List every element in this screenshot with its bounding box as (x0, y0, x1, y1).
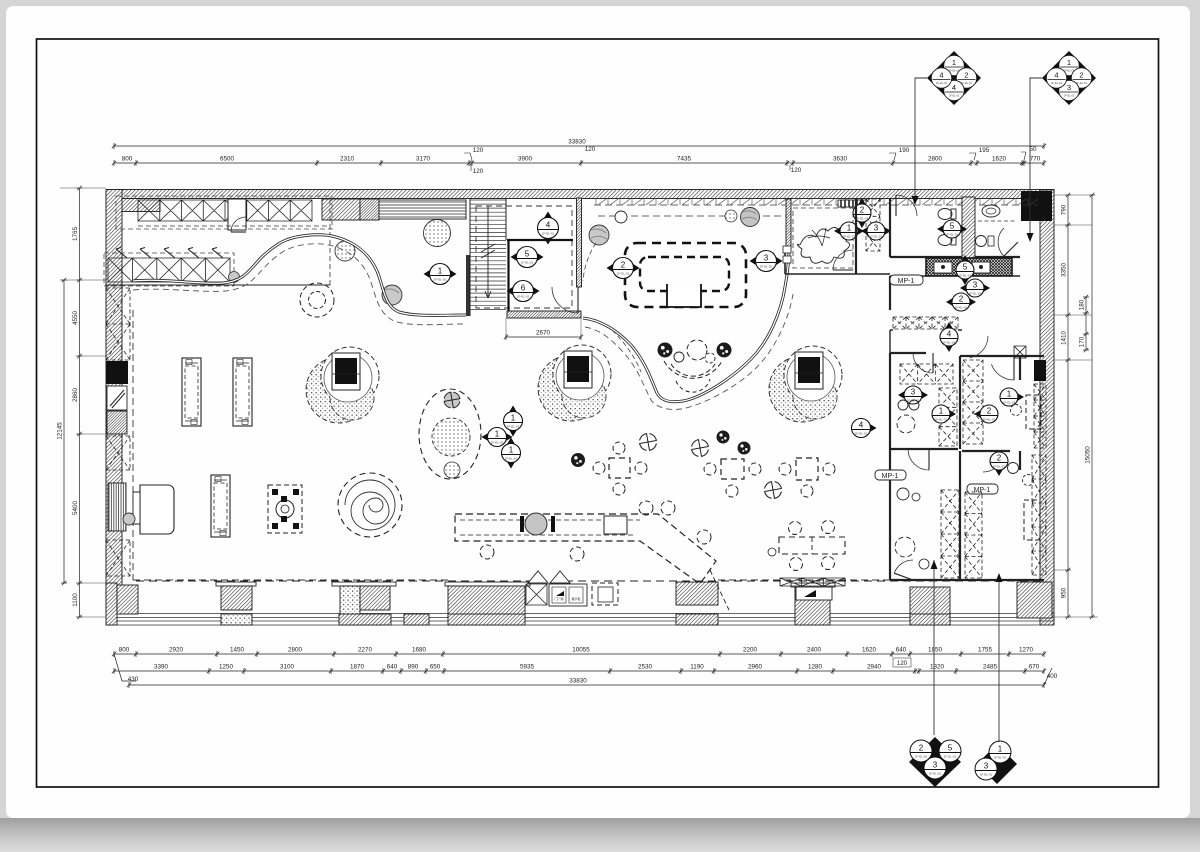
svg-text:展示柜: 展示柜 (571, 596, 580, 601)
svg-text:10055: 10055 (572, 647, 590, 654)
svg-text:1: 1 (509, 446, 514, 455)
svg-text:2800: 2800 (928, 156, 943, 163)
svg-text:1F-EL-01: 1F-EL-01 (935, 418, 948, 422)
svg-text:1F-EL-01: 1F-EL-01 (929, 772, 942, 776)
svg-text:4: 4 (859, 421, 864, 430)
svg-text:1: 1 (998, 745, 1003, 754)
svg-text:3: 3 (1067, 83, 1071, 92)
svg-text:2: 2 (621, 261, 626, 270)
svg-text:2: 2 (987, 407, 992, 416)
svg-text:790: 790 (1061, 204, 1068, 215)
svg-text:5: 5 (948, 744, 953, 753)
svg-text:640: 640 (896, 647, 907, 654)
svg-text:1F-EL-01: 1F-EL-01 (434, 278, 447, 282)
svg-text:2920: 2920 (169, 647, 184, 654)
svg-text:1F-EL-01: 1F-EL-01 (959, 274, 972, 278)
svg-text:4: 4 (947, 330, 952, 339)
svg-text:1620: 1620 (992, 156, 1007, 163)
svg-text:2270: 2270 (358, 647, 373, 654)
svg-text:4: 4 (939, 71, 943, 80)
svg-text:1F-EL-01: 1F-EL-01 (856, 217, 869, 221)
svg-text:3: 3 (764, 254, 769, 263)
svg-text:430: 430 (128, 676, 139, 683)
svg-text:1F-EL-01: 1F-EL-01 (955, 306, 968, 310)
svg-text:1F-EL-01: 1F-EL-01 (949, 69, 960, 73)
svg-text:5: 5 (963, 263, 968, 272)
svg-text:800: 800 (122, 156, 133, 163)
svg-text:3100: 3100 (280, 664, 295, 671)
svg-text:2860: 2860 (72, 388, 79, 403)
svg-text:1F-EL-01: 1F-EL-01 (760, 265, 773, 269)
svg-text:1: 1 (438, 267, 443, 276)
svg-text:7435: 7435 (677, 156, 692, 163)
svg-text:1F-EL-01: 1F-EL-01 (1064, 69, 1075, 73)
svg-text:2670: 2670 (536, 330, 551, 337)
svg-text:3: 3 (973, 281, 978, 290)
svg-text:3630: 3630 (833, 156, 848, 163)
svg-text:2800: 2800 (288, 647, 303, 654)
svg-text:1320: 1320 (930, 664, 945, 671)
svg-text:33830: 33830 (568, 139, 586, 146)
svg-text:1F-EL-01: 1F-EL-01 (507, 425, 520, 429)
svg-text:50: 50 (1029, 146, 1037, 153)
svg-text:MP-1: MP-1 (898, 278, 915, 285)
svg-text:4: 4 (952, 83, 956, 92)
svg-text:890: 890 (408, 664, 419, 671)
svg-text:15050: 15050 (1085, 446, 1092, 464)
svg-text:1F-EL-01: 1F-EL-01 (870, 235, 883, 239)
svg-text:120: 120 (473, 168, 484, 175)
svg-text:800: 800 (119, 647, 130, 654)
svg-text:4: 4 (546, 221, 551, 230)
svg-text:门厂箱: 门厂箱 (554, 596, 563, 601)
svg-text:5935: 5935 (520, 664, 535, 671)
svg-text:1620: 1620 (862, 647, 877, 654)
svg-text:170: 170 (1079, 336, 1086, 347)
svg-text:2: 2 (964, 71, 968, 80)
svg-text:190: 190 (899, 147, 910, 154)
svg-text:120: 120 (897, 661, 908, 667)
svg-text:1F-EL-01: 1F-EL-01 (994, 756, 1007, 760)
svg-text:2: 2 (860, 206, 865, 215)
svg-text:120: 120 (791, 167, 802, 174)
svg-text:1F-EL-01: 1F-EL-01 (1076, 81, 1087, 85)
svg-text:1F-EL-01: 1F-EL-01 (1051, 81, 1062, 85)
svg-text:3: 3 (933, 761, 938, 770)
svg-text:195: 195 (979, 147, 990, 154)
svg-text:5: 5 (950, 222, 955, 231)
svg-text:MP-1: MP-1 (974, 487, 991, 494)
svg-text:1190: 1190 (690, 664, 704, 671)
svg-text:400: 400 (1047, 673, 1058, 680)
svg-text:2400: 2400 (807, 647, 822, 654)
svg-text:1F-EL-01: 1F-EL-01 (617, 272, 630, 276)
svg-text:1F-EL-01: 1F-EL-01 (949, 94, 960, 98)
svg-text:770: 770 (1030, 156, 1041, 163)
svg-text:1: 1 (511, 414, 516, 423)
svg-text:1: 1 (847, 224, 852, 233)
svg-text:1755: 1755 (978, 647, 993, 654)
svg-text:3: 3 (874, 224, 879, 233)
svg-text:1: 1 (939, 407, 944, 416)
svg-text:1F-EL-01: 1F-EL-01 (855, 432, 868, 436)
svg-text:1250: 1250 (219, 664, 234, 671)
svg-text:1280: 1280 (808, 664, 823, 671)
svg-text:1680: 1680 (412, 647, 427, 654)
svg-text:2960: 2960 (748, 664, 763, 671)
svg-text:1F-EL-01: 1F-EL-01 (961, 81, 972, 85)
svg-text:180: 180 (1079, 299, 1086, 310)
svg-text:1F-EL-01: 1F-EL-01 (944, 755, 957, 759)
svg-text:1100: 1100 (72, 593, 79, 607)
svg-text:MP-1: MP-1 (882, 473, 899, 480)
svg-text:1F-EL-01: 1F-EL-01 (946, 233, 959, 237)
svg-text:1F-EL-01: 1F-EL-01 (491, 441, 504, 445)
svg-text:670: 670 (1029, 664, 1040, 671)
svg-text:3900: 3900 (518, 156, 533, 163)
svg-text:1F-EL-01: 1F-EL-01 (915, 755, 928, 759)
svg-text:3390: 3390 (154, 664, 169, 671)
svg-text:1F-EL-01: 1F-EL-01 (521, 261, 534, 265)
svg-text:5400: 5400 (72, 501, 79, 516)
svg-text:6: 6 (521, 284, 526, 293)
svg-text:2: 2 (959, 295, 964, 304)
svg-text:4: 4 (1054, 71, 1058, 80)
svg-text:950: 950 (1061, 587, 1068, 598)
svg-text:1F-EL-01: 1F-EL-01 (969, 292, 982, 296)
svg-text:1F-EL-01: 1F-EL-01 (843, 235, 856, 239)
svg-text:1F-EL-01: 1F-EL-01 (505, 457, 518, 461)
svg-text:1765: 1765 (72, 227, 79, 242)
svg-text:120: 120 (473, 147, 484, 154)
svg-text:2530: 2530 (638, 664, 653, 671)
svg-text:1: 1 (495, 430, 500, 439)
svg-text:1: 1 (952, 58, 956, 67)
svg-text:2: 2 (997, 454, 1002, 463)
svg-text:1F-EL-01: 1F-EL-01 (1064, 94, 1075, 98)
svg-text:3: 3 (911, 388, 916, 397)
svg-text:120: 120 (585, 146, 596, 153)
svg-text:12145: 12145 (57, 422, 64, 440)
svg-text:6500: 6500 (220, 156, 235, 163)
svg-text:2310: 2310 (340, 156, 355, 163)
svg-text:1F-EL-01: 1F-EL-01 (542, 232, 555, 236)
svg-text:1F-EL-01: 1F-EL-01 (936, 81, 947, 85)
svg-text:2200: 2200 (743, 647, 758, 654)
svg-text:2: 2 (919, 744, 924, 753)
svg-text:1F-EL-01: 1F-EL-01 (993, 465, 1006, 469)
svg-text:650: 650 (430, 664, 441, 671)
svg-text:1F-EL-01: 1F-EL-01 (517, 295, 530, 299)
svg-text:33830: 33830 (569, 678, 587, 685)
svg-text:5: 5 (525, 250, 530, 259)
svg-text:3350: 3350 (1061, 263, 1068, 278)
svg-text:1F-EL-01: 1F-EL-01 (983, 418, 996, 422)
svg-text:1: 1 (1007, 390, 1012, 399)
svg-text:3170: 3170 (416, 156, 431, 163)
svg-text:1F-EL-01: 1F-EL-01 (980, 773, 993, 777)
svg-text:1F-EL-01: 1F-EL-01 (1003, 401, 1016, 405)
svg-text:1450: 1450 (230, 647, 245, 654)
svg-text:2485: 2485 (983, 664, 998, 671)
svg-text:2: 2 (1079, 71, 1083, 80)
svg-text:1870: 1870 (350, 664, 365, 671)
svg-text:640: 640 (387, 664, 398, 671)
svg-text:1F-EL-01: 1F-EL-01 (943, 341, 956, 345)
svg-text:4550: 4550 (72, 311, 79, 326)
svg-text:1850: 1850 (928, 647, 943, 654)
svg-text:3: 3 (984, 762, 989, 771)
svg-text:1410: 1410 (1061, 331, 1068, 346)
svg-text:1: 1 (1067, 58, 1071, 67)
svg-text:2940: 2940 (867, 664, 882, 671)
svg-text:1270: 1270 (1019, 647, 1034, 654)
